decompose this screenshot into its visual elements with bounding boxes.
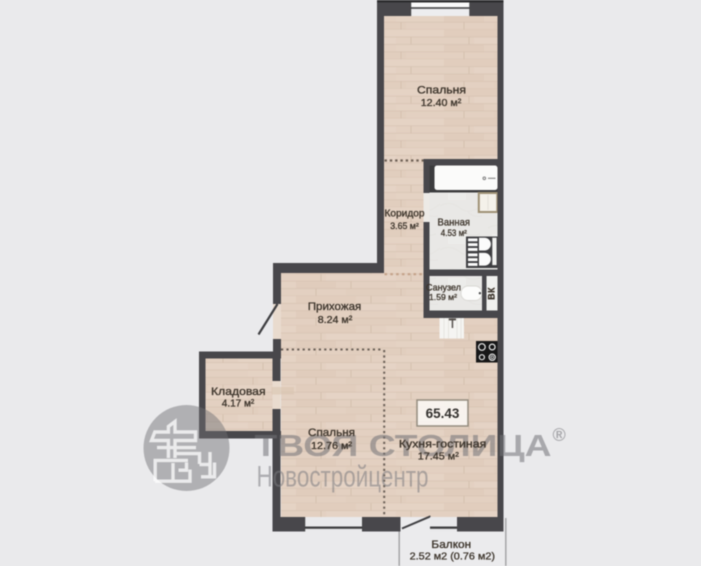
svg-text:Ванная: Ванная: [438, 216, 471, 228]
svg-text:Спальня: Спальня: [308, 427, 355, 439]
svg-text:Прихожая: Прихожая: [308, 301, 362, 313]
svg-text:17.45 м²: 17.45 м²: [418, 451, 460, 462]
svg-text:8.24 м²: 8.24 м²: [318, 315, 353, 326]
svg-text:Коридор: Коридор: [385, 209, 425, 220]
svg-text:Кладовая: Кладовая: [211, 386, 266, 398]
svg-text:Новостройцентр: Новостройцентр: [257, 461, 429, 494]
svg-text:ВК: ВК: [487, 287, 497, 300]
svg-text:®: ®: [553, 425, 566, 445]
svg-text:65.43: 65.43: [426, 406, 460, 421]
svg-text:Балкон: Балкон: [431, 539, 471, 551]
svg-text:Кухня-гостиная: Кухня-гостиная: [399, 439, 487, 451]
svg-text:2.52 м2 (0.76 м2): 2.52 м2 (0.76 м2): [410, 551, 495, 563]
svg-text:12.76 м²: 12.76 м²: [311, 441, 353, 452]
svg-text:3.65 м²: 3.65 м²: [390, 221, 419, 231]
svg-text:4.17 м²: 4.17 м²: [222, 399, 255, 410]
svg-text:Санузел: Санузел: [426, 283, 461, 293]
svg-text:12.40 м²: 12.40 м²: [421, 98, 462, 109]
svg-text:4.53 м²: 4.53 м²: [441, 228, 467, 238]
svg-text:1.59 м²: 1.59 м²: [429, 292, 457, 302]
svg-text:Спальня: Спальня: [417, 84, 466, 96]
